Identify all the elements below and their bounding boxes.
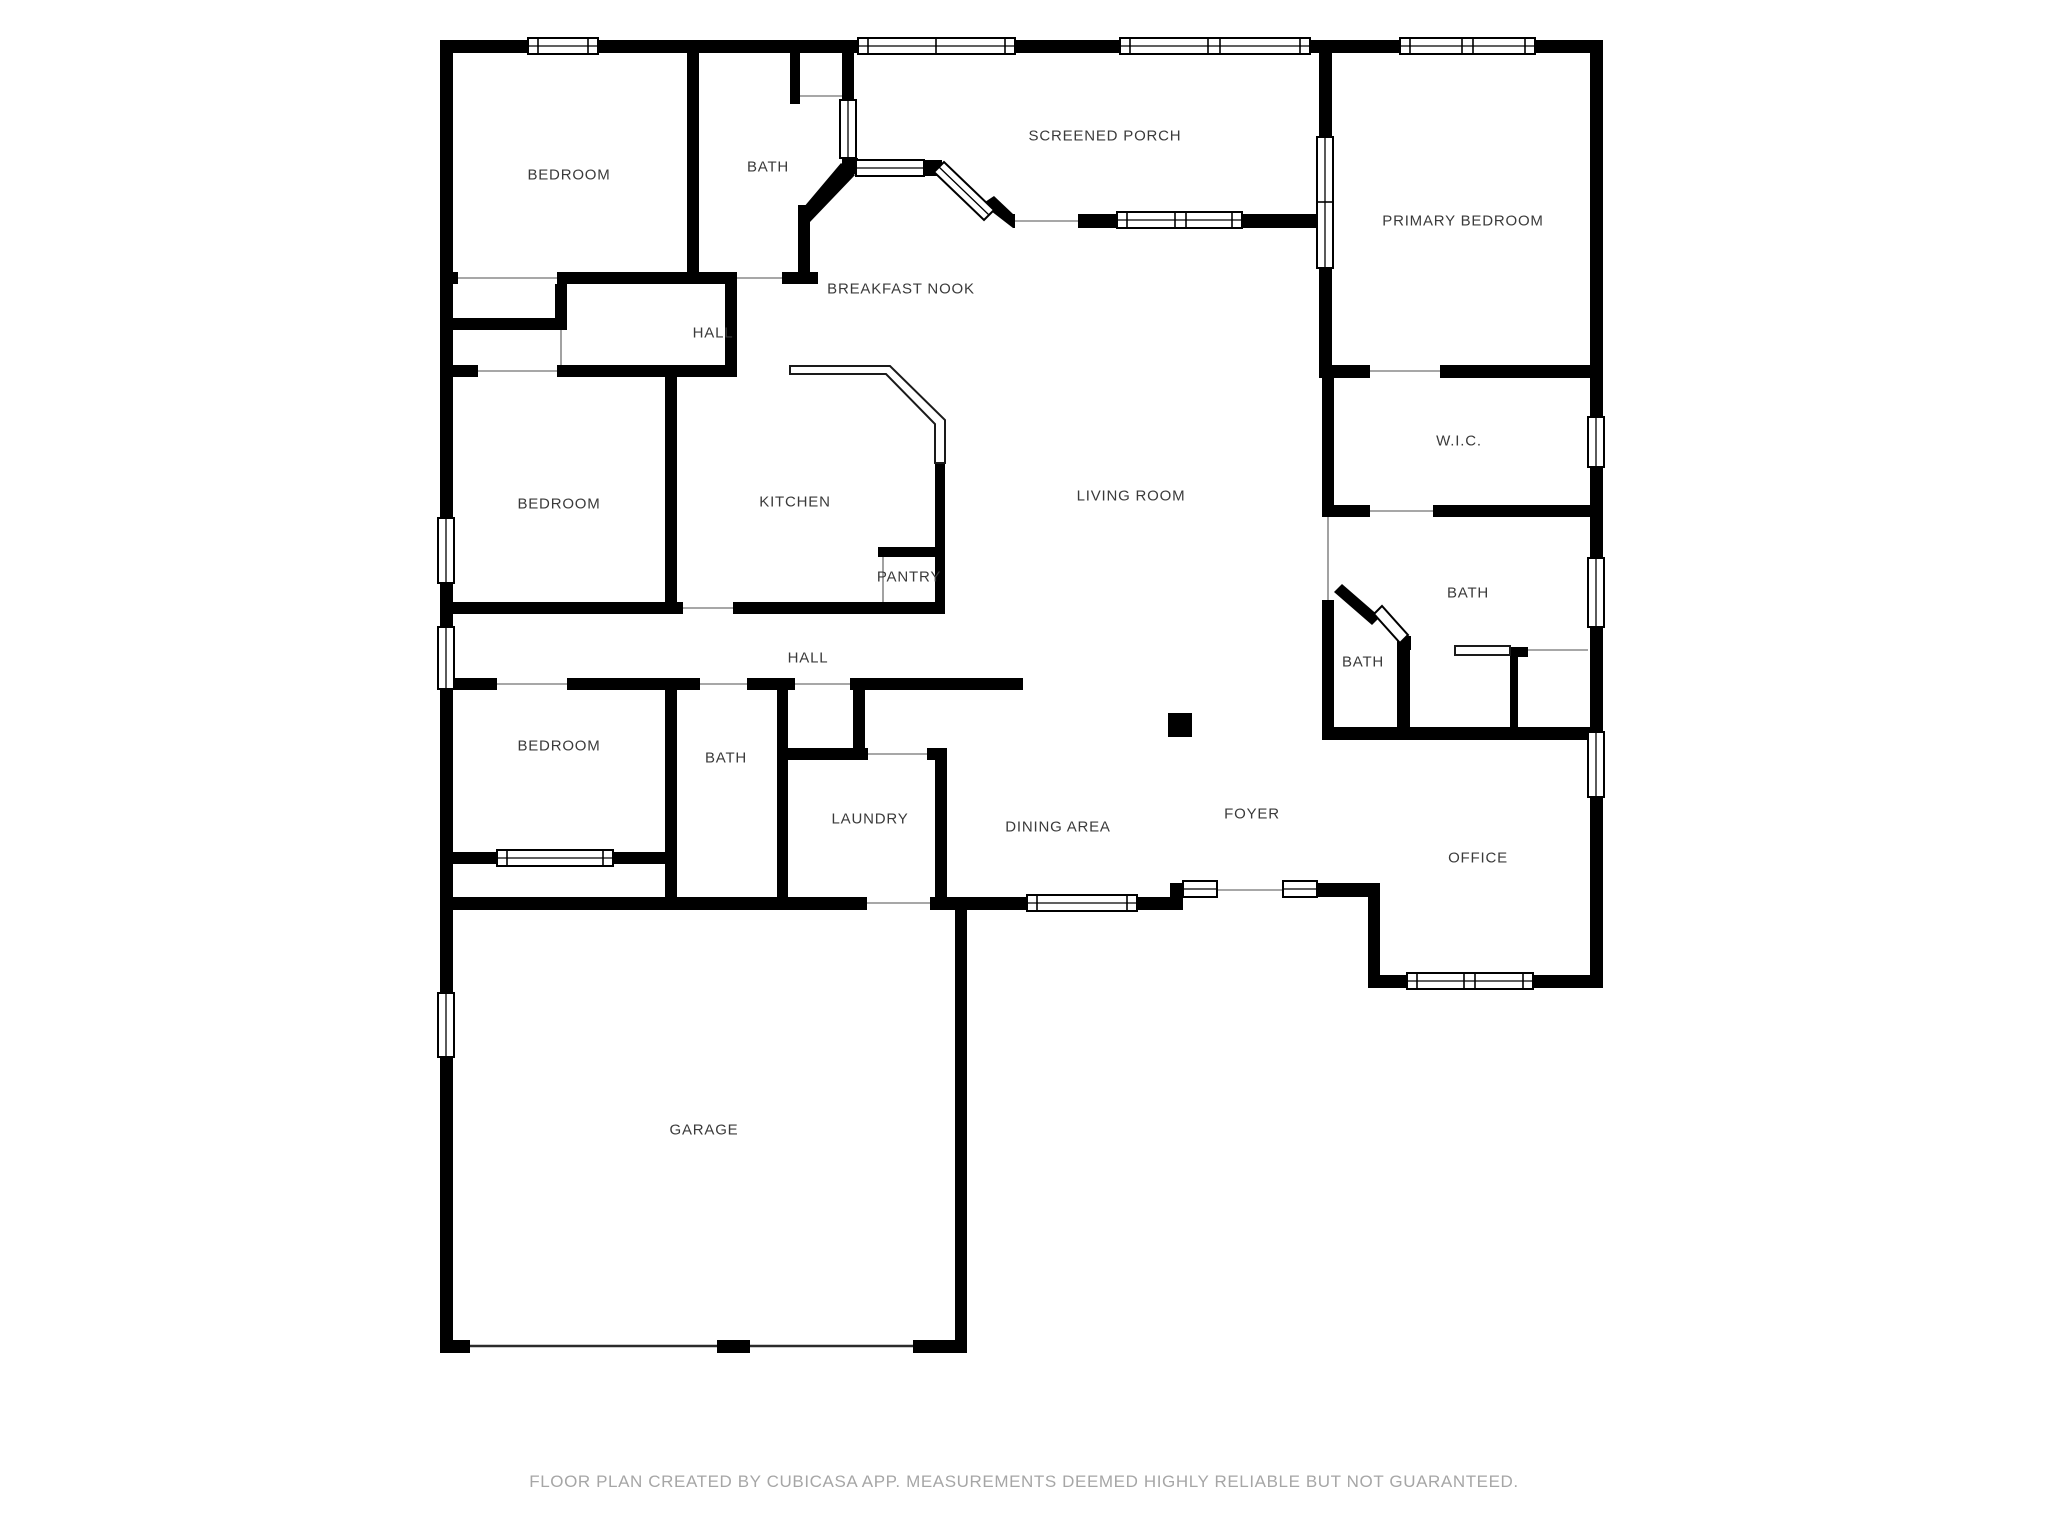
room-label-bedroom-1: BEDROOM [527, 168, 610, 183]
floor-plan-drawing [0, 0, 2048, 1536]
room-label-bath-2: BATH [705, 751, 747, 766]
room-label-screened-porch: SCREENED PORCH [1029, 129, 1182, 144]
column-marker [1168, 713, 1192, 737]
room-label-bath-1: BATH [747, 160, 789, 175]
room-label-hall-upper: HALL [693, 326, 734, 341]
room-label-kitchen: KITCHEN [759, 495, 830, 510]
disclaimer-caption: FLOOR PLAN CREATED BY CUBICASA APP. MEAS… [0, 1472, 2048, 1492]
kitchen-counter [790, 366, 945, 463]
room-label-laundry: LAUNDRY [831, 812, 908, 827]
room-label-bedroom-2: BEDROOM [517, 497, 600, 512]
room-label-living-room: LIVING ROOM [1077, 489, 1186, 504]
room-label-breakfast-nook: BREAKFAST NOOK [827, 282, 975, 297]
room-label-garage: GARAGE [670, 1123, 739, 1138]
room-label-bedroom-3: BEDROOM [517, 739, 600, 754]
walls [440, 40, 1603, 1353]
bath-vanity [1455, 646, 1510, 655]
room-label-foyer: FOYER [1224, 807, 1280, 822]
room-label-bath-small: BATH [1342, 655, 1384, 670]
room-label-hall-lower: HALL [788, 651, 829, 666]
floor-plan: BEDROOMBATHSCREENED PORCHPRIMARY BEDROOM… [0, 0, 2048, 1536]
room-label-office: OFFICE [1448, 851, 1508, 866]
room-label-pantry: PANTRY [877, 570, 941, 585]
room-label-wic: W.I.C. [1436, 434, 1482, 449]
room-label-bath-primary: BATH [1447, 586, 1489, 601]
door-openings [458, 214, 1588, 1353]
room-label-primary-bedroom: PRIMARY BEDROOM [1382, 214, 1543, 229]
room-label-dining-area: DINING AREA [1005, 820, 1111, 835]
